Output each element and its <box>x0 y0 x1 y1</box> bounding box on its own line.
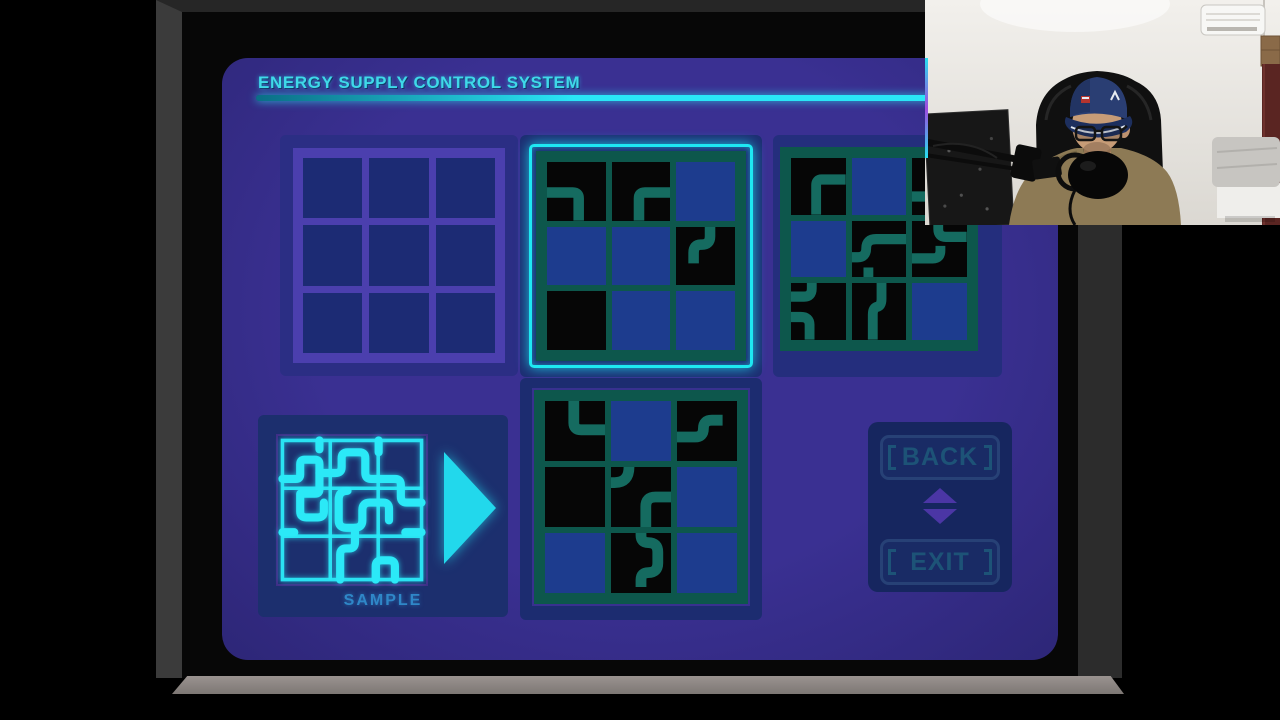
puzzle-cell <box>912 221 967 278</box>
bracket-decoration <box>888 445 896 470</box>
puzzle-cell <box>612 162 671 221</box>
back-button[interactable]: BACK <box>880 435 1000 480</box>
monitor-stand <box>172 676 1124 694</box>
bed <box>1212 137 1280 222</box>
puzzle-cell <box>547 291 606 350</box>
puzzle-cell <box>611 467 671 527</box>
puzzle-cell <box>676 227 735 286</box>
puzzle-cell <box>612 291 671 350</box>
puzzle-cell <box>436 225 495 285</box>
puzzle-slot-2[interactable] <box>536 151 746 361</box>
puzzle-cell <box>852 158 907 215</box>
back-button-label: BACK <box>902 443 978 472</box>
bracket-decoration <box>984 445 992 470</box>
page-title: ENERGY SUPPLY CONTROL SYSTEM <box>258 73 580 93</box>
puzzle-cell <box>676 162 735 221</box>
puzzle-cell <box>369 293 428 353</box>
sample-panel: SAMPLE <box>258 415 508 617</box>
puzzle-cell <box>369 158 428 218</box>
puzzle-cell <box>547 162 606 221</box>
puzzle-cell <box>852 283 907 340</box>
capture-glitch-strip <box>925 58 928 158</box>
puzzle-cell <box>611 533 671 593</box>
puzzle-cell <box>545 467 605 527</box>
puzzle-cell <box>303 293 362 353</box>
puzzle-cell <box>545 533 605 593</box>
puzzle-cell <box>791 221 846 278</box>
puzzle-cell <box>545 401 605 461</box>
puzzle-slot-panel-2 <box>520 135 762 377</box>
selector-arrows <box>868 488 1012 524</box>
selection-highlight <box>529 144 753 368</box>
buttons-panel: BACK EXIT <box>868 422 1012 592</box>
puzzle-cell <box>369 225 428 285</box>
puzzle-cell <box>303 225 362 285</box>
puzzle-slot-4[interactable] <box>534 390 748 604</box>
puzzle-cell <box>612 227 671 286</box>
webcam-overlay <box>925 0 1280 225</box>
arrow-down-icon <box>923 509 957 524</box>
arrow-up-icon <box>923 488 957 503</box>
play-arrow-icon <box>444 452 496 564</box>
puzzle-cell <box>791 158 846 215</box>
puzzle-cell <box>676 291 735 350</box>
sample-label: SAMPLE <box>318 592 448 610</box>
puzzle-slot-panel-4 <box>520 378 762 620</box>
bracket-decoration <box>984 549 992 575</box>
puzzle-cell <box>611 401 671 461</box>
puzzle-slot-1[interactable] <box>293 148 505 363</box>
puzzle-cell <box>677 467 737 527</box>
title-underline <box>256 95 962 101</box>
puzzle-cell <box>677 401 737 461</box>
bracket-decoration <box>888 549 896 575</box>
sample-solution-image <box>278 436 426 584</box>
puzzle-cell <box>436 158 495 218</box>
air-conditioner <box>1201 5 1265 35</box>
exit-button-label: EXIT <box>910 548 970 577</box>
cardboard-box <box>1261 36 1280 66</box>
puzzle-cell <box>791 283 846 340</box>
puzzle-cell <box>912 283 967 340</box>
stream-frame: ENERGY SUPPLY CONTROL SYSTEM SAMPLE <box>0 0 1280 720</box>
puzzle-cell <box>677 533 737 593</box>
puzzle-cell <box>303 158 362 218</box>
puzzle-slot-panel-1 <box>280 135 518 376</box>
puzzle-cell <box>547 227 606 286</box>
exit-button[interactable]: EXIT <box>880 539 1000 585</box>
puzzle-cell <box>436 293 495 353</box>
puzzle-cell <box>852 221 907 278</box>
